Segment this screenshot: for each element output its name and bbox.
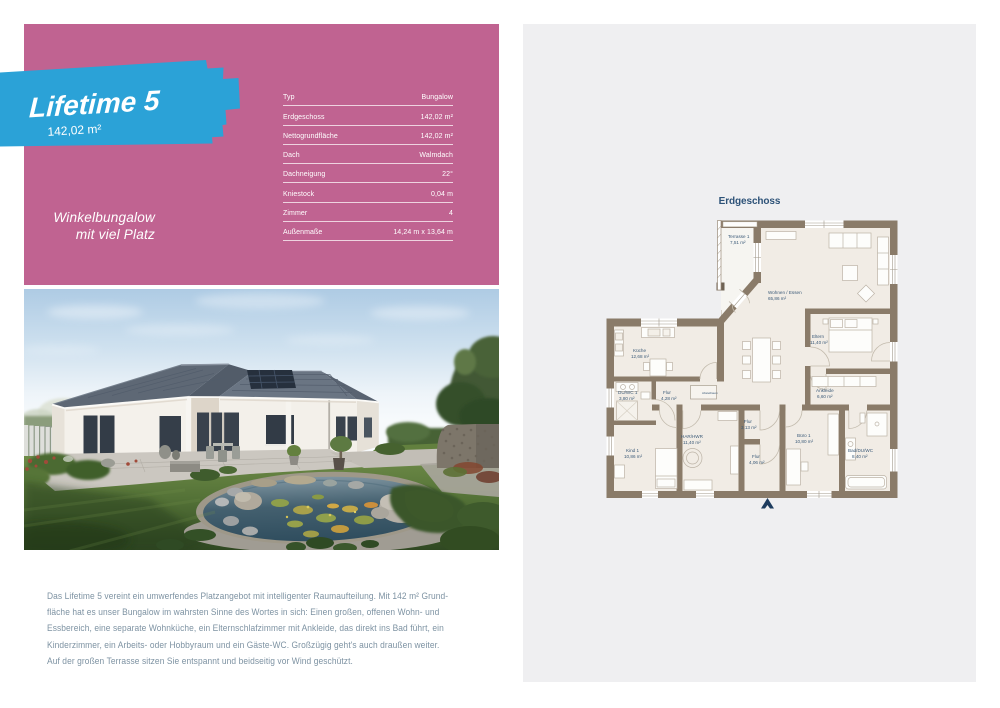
svg-text:Flur: Flur [752,454,760,459]
svg-text:65,86 m²: 65,86 m² [768,296,787,301]
svg-text:Ankleide: Ankleide [816,388,834,393]
svg-text:DU/WC 1: DU/WC 1 [618,390,638,395]
svg-text:4,06 m²: 4,06 m² [749,460,765,465]
svg-text:7,51 m²: 7,51 m² [730,240,746,245]
svg-text:6,60 m²: 6,60 m² [817,394,833,399]
svg-text:Wohnen / Essen: Wohnen / Essen [768,290,802,295]
svg-text:Terrasse 1: Terrasse 1 [728,234,750,239]
svg-text:12,68 m²: 12,68 m² [631,354,650,359]
svg-text:Bad/DU/WC: Bad/DU/WC [848,448,874,453]
svg-text:10,80 m²: 10,80 m² [795,439,814,444]
svg-text:10,86 m²: 10,86 m² [624,454,643,459]
svg-text:HAR/HWR: HAR/HWR [681,434,704,439]
svg-text:3,13 m²: 3,13 m² [741,425,757,430]
svg-text:8,40 m²: 8,40 m² [852,454,868,459]
svg-text:Flur: Flur [744,419,752,424]
svg-text:3,80 m²: 3,80 m² [619,396,635,401]
svg-text:Küche: Küche [633,348,646,353]
svg-text:Flur: Flur [663,390,671,395]
svg-text:11,40 m²: 11,40 m² [810,340,828,345]
svg-text:Eltern: Eltern [812,334,824,339]
svg-text:4,28 m²: 4,28 m² [661,396,677,401]
svg-text:Abstellraum: Abstellraum [702,391,718,395]
svg-text:11,40 m²: 11,40 m² [683,440,701,445]
svg-text:Büro 1: Büro 1 [797,433,811,438]
svg-text:Kind 1: Kind 1 [626,448,639,453]
